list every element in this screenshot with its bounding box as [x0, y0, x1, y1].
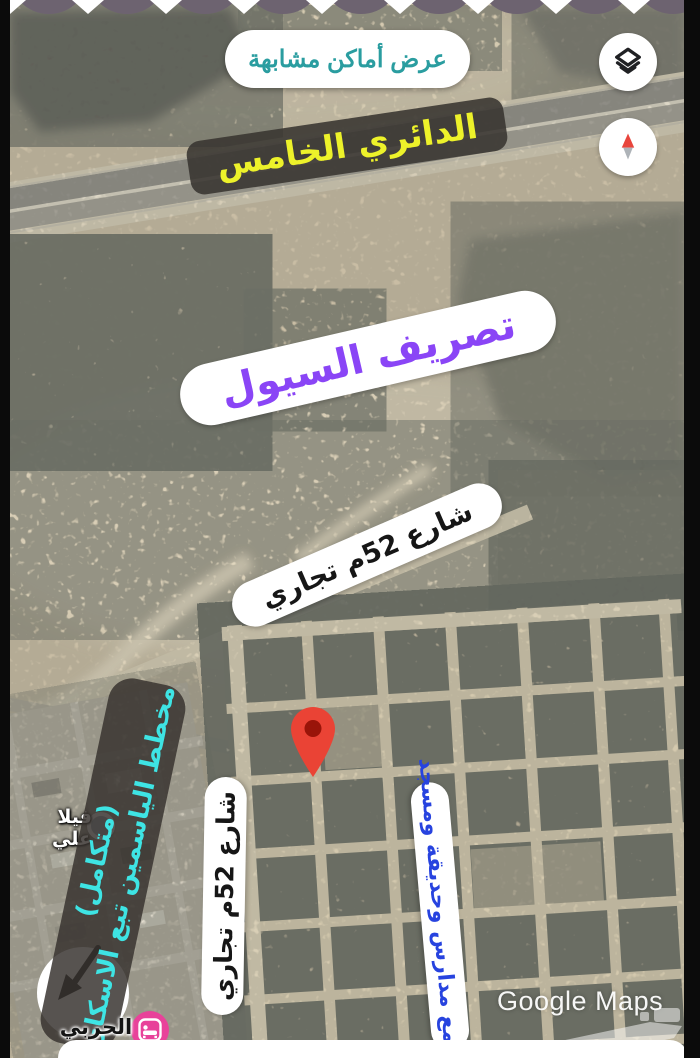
bottom-sheet-handle[interactable] — [58, 1040, 688, 1058]
layers-icon — [611, 45, 645, 79]
compass-button[interactable] — [599, 118, 657, 176]
map-pin-icon[interactable] — [289, 705, 337, 779]
poi-label-harbi[interactable]: الحربي — [50, 1015, 142, 1039]
show-similar-places-label: عرض أماكن مشابهة — [248, 45, 447, 74]
top-scallop-border — [10, 0, 684, 16]
show-similar-places-button[interactable]: عرض أماكن مشابهة — [225, 30, 470, 88]
screenshot-root: عرض أماكن مشابهة الدائري الخامس تصريف ال… — [0, 0, 700, 1058]
compass-icon — [611, 130, 645, 164]
annotation-street-52-vertical: شارع 52م تجاري — [201, 777, 247, 1016]
right-letterbox-bar — [684, 0, 700, 1058]
left-letterbox-bar — [0, 0, 10, 1058]
layers-button[interactable] — [599, 33, 657, 91]
